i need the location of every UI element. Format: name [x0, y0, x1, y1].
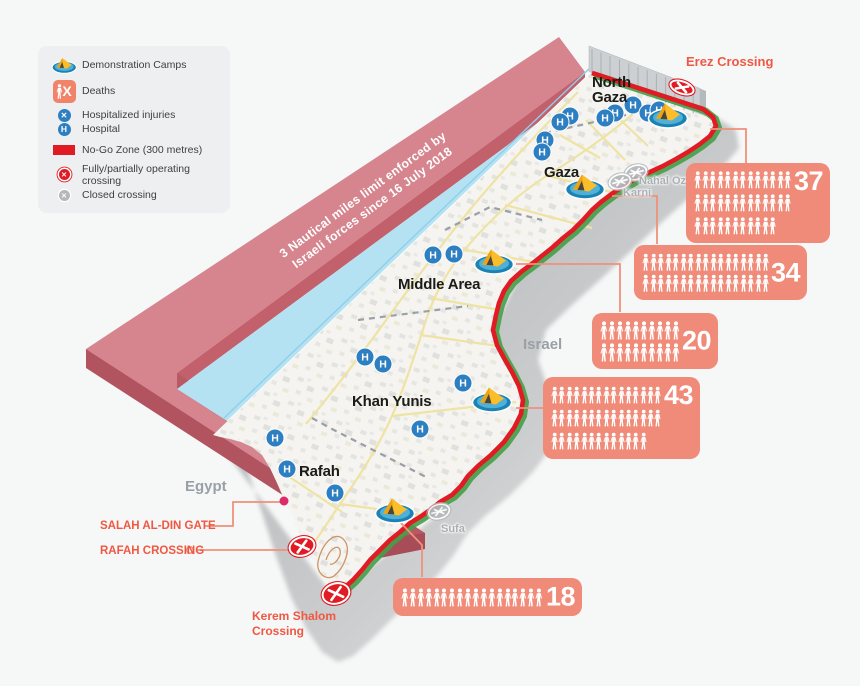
legend-item-label: Hospitalized injuries [82, 109, 175, 121]
person-icon [618, 384, 625, 406]
person-icon [672, 342, 680, 363]
person-icon [702, 192, 710, 214]
person-icon [732, 169, 740, 191]
person-icon [616, 320, 624, 341]
person-icon [687, 252, 695, 273]
gaza-infographic-map: 3 Nautical miles limit enforced by Israe… [0, 0, 860, 686]
deaths-icon: X [53, 80, 76, 103]
person-icon [401, 585, 409, 610]
legend-item-injury: ✕Hospitalized injuries [46, 109, 220, 122]
person-icon [754, 215, 762, 237]
legend-icon-cell: ✕ [46, 167, 82, 182]
person-icon [535, 585, 543, 610]
person-icon [702, 252, 710, 273]
legend-item-label: Demonstration Camps [82, 59, 186, 71]
legend-item-closed-crossing: ✕Closed crossing [46, 188, 220, 203]
person-icon [488, 585, 496, 610]
person-icon [724, 215, 732, 237]
person-icon [762, 169, 770, 191]
legend-item-label: Deaths [82, 85, 115, 97]
person-icon [672, 252, 680, 273]
person-icon [595, 384, 602, 406]
stat-value: 34 [771, 259, 800, 286]
stat-box-deaths-37: 37 [686, 163, 830, 243]
person-icon [732, 273, 740, 294]
person-icon [657, 273, 665, 294]
person-icon [610, 384, 617, 406]
person-icon [755, 273, 763, 294]
person-icon [717, 169, 725, 191]
person-icon [687, 273, 695, 294]
person-icon [717, 192, 725, 214]
person-icon [417, 585, 425, 610]
legend-item-tent: Demonstration Camps [46, 55, 220, 75]
person-icon [665, 273, 673, 294]
legend-item-nogo: No-Go Zone (300 metres) [46, 144, 220, 156]
person-icon [640, 430, 647, 452]
person-icon [657, 252, 665, 273]
person-icon [566, 384, 573, 406]
stat-box-deaths-34: 34 [634, 245, 807, 300]
person-icon [762, 215, 770, 237]
legend-item-label: No-Go Zone (300 metres) [82, 144, 202, 156]
person-icon [709, 215, 717, 237]
person-icon [777, 192, 785, 214]
stat-box-deaths-43: 43 [543, 377, 700, 459]
person-icon [640, 342, 648, 363]
person-icon [739, 169, 747, 191]
person-icon [480, 585, 488, 610]
stat-value: 43 [664, 382, 693, 409]
person-icon [769, 192, 777, 214]
person-icon [527, 585, 535, 610]
person-icon [664, 342, 672, 363]
person-icon [725, 252, 733, 273]
person-icon [702, 273, 710, 294]
no-go-zone-icon [53, 145, 75, 155]
person-icon [650, 252, 658, 273]
person-icon [694, 192, 702, 214]
hospital-icon: H [58, 123, 71, 136]
person-icon [740, 252, 748, 273]
person-icon [732, 192, 740, 214]
person-icon [608, 342, 616, 363]
person-icon [709, 169, 717, 191]
person-icon [724, 169, 732, 191]
person-icon [739, 192, 747, 214]
person-icon [640, 320, 648, 341]
person-icon [448, 585, 456, 610]
legend-item-operating-crossing: ✕Fully/partially operating crossing [46, 163, 220, 187]
person-icon [433, 585, 441, 610]
person-icon [573, 430, 580, 452]
person-icon [625, 384, 632, 406]
person-icon [588, 430, 595, 452]
stat-person-row [551, 407, 692, 429]
person-icon [581, 430, 588, 452]
person-icon [762, 273, 770, 294]
person-icon [717, 215, 725, 237]
person-icon [642, 273, 650, 294]
person-icon [654, 384, 661, 406]
person-icon [769, 169, 777, 191]
person-icon [624, 342, 632, 363]
person-icon [724, 192, 732, 214]
person-icon [566, 430, 573, 452]
person-icon [632, 430, 639, 452]
person-icon [650, 273, 658, 294]
person-icon [654, 407, 661, 429]
person-icon [504, 585, 512, 610]
person-icon [595, 407, 602, 429]
person-icon [647, 407, 654, 429]
person-icon [632, 384, 639, 406]
stat-box-deaths-20: 20 [592, 313, 718, 369]
stat-person-row [694, 215, 822, 237]
person-icon [566, 407, 573, 429]
person-icon [588, 384, 595, 406]
legend-panel: Demonstration CampsXDeaths✕Hospitalized … [38, 46, 230, 213]
person-icon [754, 169, 762, 191]
injury-icon: ✕ [58, 109, 71, 122]
person-icon [640, 384, 647, 406]
stat-value: 20 [682, 328, 711, 355]
person-icon [624, 320, 632, 341]
person-icon [732, 215, 740, 237]
stat-value: 37 [794, 168, 823, 195]
person-icon [717, 252, 725, 273]
person-icon [665, 252, 673, 273]
person-icon [551, 407, 558, 429]
person-icon [755, 252, 763, 273]
person-icon [558, 407, 565, 429]
person-icon [440, 585, 448, 610]
person-icon [680, 252, 688, 273]
operating-crossing-icon: ✕ [59, 169, 70, 180]
person-icon [747, 192, 755, 214]
person-icon [762, 192, 770, 214]
person-icon [558, 384, 565, 406]
person-icon [747, 252, 755, 273]
person-icon [425, 585, 433, 610]
person-icon [642, 252, 650, 273]
person-icon [573, 384, 580, 406]
person-icon [573, 407, 580, 429]
person-icon [519, 585, 527, 610]
person-icon [656, 320, 664, 341]
person-icon [656, 342, 664, 363]
person-icon [694, 215, 702, 237]
person-icon [581, 384, 588, 406]
person-icon [610, 430, 617, 452]
person-icon [769, 215, 777, 237]
person-icon [640, 407, 647, 429]
person-icon [702, 169, 710, 191]
person-icon [472, 585, 480, 610]
legend-icon-cell: X [46, 80, 82, 103]
person-icon [747, 273, 755, 294]
person-icon [717, 273, 725, 294]
person-icon [551, 384, 558, 406]
person-icon [740, 273, 748, 294]
person-icon [618, 430, 625, 452]
person-icon [464, 585, 472, 610]
person-icon [632, 320, 640, 341]
person-icon [710, 273, 718, 294]
person-icon [456, 585, 464, 610]
legend-icon-cell: ✕ [46, 109, 82, 122]
person-icon [709, 192, 717, 214]
legend-item-label: Hospital [82, 123, 120, 135]
person-icon [647, 384, 654, 406]
person-icon [695, 273, 703, 294]
legend-item-hospital: HHospital [46, 123, 220, 136]
person-icon [762, 252, 770, 273]
person-icon [511, 585, 519, 610]
person-icon [695, 252, 703, 273]
person-icon [710, 252, 718, 273]
legend-item-label: Closed crossing [82, 189, 157, 201]
person-icon [608, 320, 616, 341]
person-icon [600, 342, 608, 363]
person-icon [725, 273, 733, 294]
legend-icon-cell [46, 55, 82, 75]
person-icon [732, 252, 740, 273]
stat-value: 18 [546, 584, 575, 611]
person-icon [603, 384, 610, 406]
person-icon [496, 585, 504, 610]
person-icon [618, 407, 625, 429]
person-icon [588, 407, 595, 429]
person-icon [551, 430, 558, 452]
person-icon [595, 430, 602, 452]
person-icon [702, 215, 710, 237]
person-icon [784, 192, 792, 214]
person-icon [603, 430, 610, 452]
person-icon [558, 430, 565, 452]
person-icon [409, 585, 417, 610]
person-icon [632, 342, 640, 363]
person-icon [625, 407, 632, 429]
person-icon [747, 169, 755, 191]
person-icon [672, 273, 680, 294]
person-icon [616, 342, 624, 363]
person-icon [648, 320, 656, 341]
legend-icon-cell: ✕ [46, 188, 82, 203]
person-icon [648, 342, 656, 363]
person-icon [632, 407, 639, 429]
person-icon [777, 169, 785, 191]
stat-person-row [551, 430, 692, 452]
person-icon [784, 169, 792, 191]
person-icon [603, 407, 610, 429]
person-icon [581, 407, 588, 429]
person-icon [672, 320, 680, 341]
demonstration-camp-icon [50, 55, 79, 75]
closed-crossing-icon: ✕ [59, 190, 70, 201]
person-icon [754, 192, 762, 214]
legend-icon-cell [46, 145, 82, 155]
person-icon [680, 273, 688, 294]
person-icon [625, 430, 632, 452]
person-icon [610, 407, 617, 429]
person-icon [600, 320, 608, 341]
person-icon [664, 320, 672, 341]
person-icon [747, 215, 755, 237]
legend-icon-cell: H [46, 123, 82, 136]
person-icon [694, 169, 702, 191]
person-icon [739, 215, 747, 237]
legend-item-deaths: XDeaths [46, 80, 220, 103]
stat-box-deaths-18: 18 [393, 578, 582, 616]
legend-item-label: Fully/partially operating crossing [82, 163, 220, 187]
